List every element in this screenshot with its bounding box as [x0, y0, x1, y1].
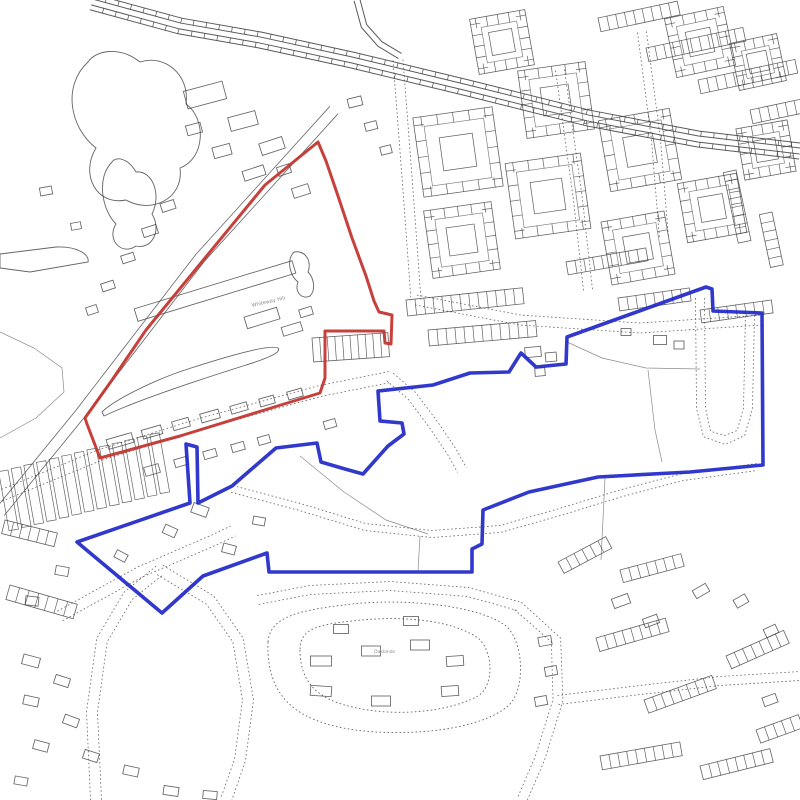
red-site-boundary — [85, 142, 392, 458]
map-label: Whiteway Hill — [251, 295, 286, 309]
map-label: Oaklands — [374, 649, 396, 655]
site-location-plan: Whiteway HillOaklands — [0, 0, 800, 800]
map-canvas: Whiteway HillOaklands — [0, 0, 800, 800]
